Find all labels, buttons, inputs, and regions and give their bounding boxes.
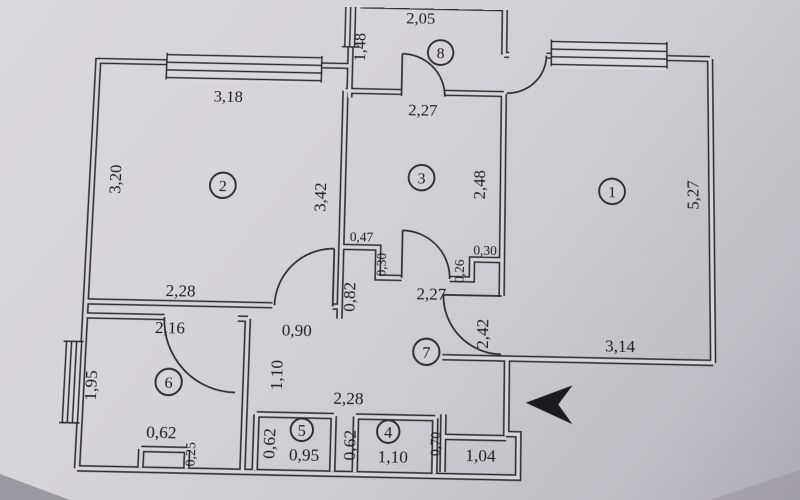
room-badge-7: 7 [413,338,440,365]
room-number-1: 1 [608,184,616,201]
floor-plan-sheet: 2,05 1,48 2,27 2,48 3,18 3,20 3,42 0,47 … [0,0,800,500]
dim-vestibule-width: 1,04 [465,445,496,466]
entrance-arrow-icon [526,384,573,424]
window-room6-left [59,341,84,423]
dim-room6-niche-width: 0,62 [146,422,177,442]
dim-room2-width: 3,18 [213,87,243,106]
dim-duct-left-width: 0,47 [350,229,374,245]
dim-duct-right-depth: 0,26 [451,259,467,283]
dim-duct-right-width: 0,30 [473,242,497,258]
dim-room6-height: 1,95 [80,370,101,401]
room-number-4: 4 [384,424,393,442]
door-room3 [402,230,451,279]
paper-edge-shadow-left [0,474,70,500]
paper-edge-shadow-right [710,470,800,500]
room-badge-8: 8 [428,40,454,65]
room-badge-4: 4 [377,420,400,443]
room-number-2: 2 [219,178,228,195]
room-number-6: 6 [164,375,173,393]
floor-plan-svg: 2,05 1,48 2,27 2,48 3,18 3,20 3,42 0,47 … [0,0,800,500]
dim-room2-height-right: 3,42 [310,182,330,212]
dim-room2-door: 0,90 [282,320,313,340]
dim-room1-width: 3,14 [605,336,636,356]
window-room1-top [551,40,667,71]
dim-room6-niche-depth: 0,25 [182,441,199,466]
floor-plan-photo: 2,05 1,48 2,27 2,48 3,18 3,20 3,42 0,47 … [0,0,800,500]
room-badge-6: 6 [155,368,182,395]
dim-vestibule-depth: 0,70 [427,431,443,456]
dim-duct-left-depth: 0,30 [373,252,389,276]
dim-room3-width: 2,27 [408,101,438,120]
door-room2 [274,248,334,307]
dim-room2-width-bottom: 2,28 [165,281,196,301]
dim-room8-window: 1,48 [350,33,370,62]
door-room1-top [507,55,547,94]
room-number-8: 8 [437,46,445,63]
dim-room6-width: 2,16 [155,318,186,338]
dim-room2-height-left: 3,20 [105,164,126,193]
dim-hall-stub: 0,82 [339,282,359,312]
room-badge-2: 2 [209,172,236,198]
dim-room6-door: 1,10 [266,360,287,391]
dim-room4-width: 1,10 [377,447,408,468]
window-room2-top [166,53,322,85]
dim-room8-width: 2,05 [406,9,435,28]
room-badge-1: 1 [599,178,625,204]
dim-room5-width: 0,95 [289,445,320,466]
room-badge-3: 3 [408,165,434,191]
room-number-7: 7 [422,344,431,362]
dim-room1-height: 5,27 [683,180,702,210]
dim-hall-width: 2,27 [416,284,446,304]
dim-room5-depth: 0,62 [259,428,280,459]
dim-room3-height: 2,48 [470,170,490,199]
dim-hall-entry: 2,42 [473,319,493,349]
room-number-3: 3 [417,171,425,188]
room-number-5: 5 [297,422,306,440]
dim-room4-depth: 0,62 [339,430,359,461]
dim-hall-bottom: 2,28 [333,388,364,408]
room-badge-5: 5 [290,418,313,441]
